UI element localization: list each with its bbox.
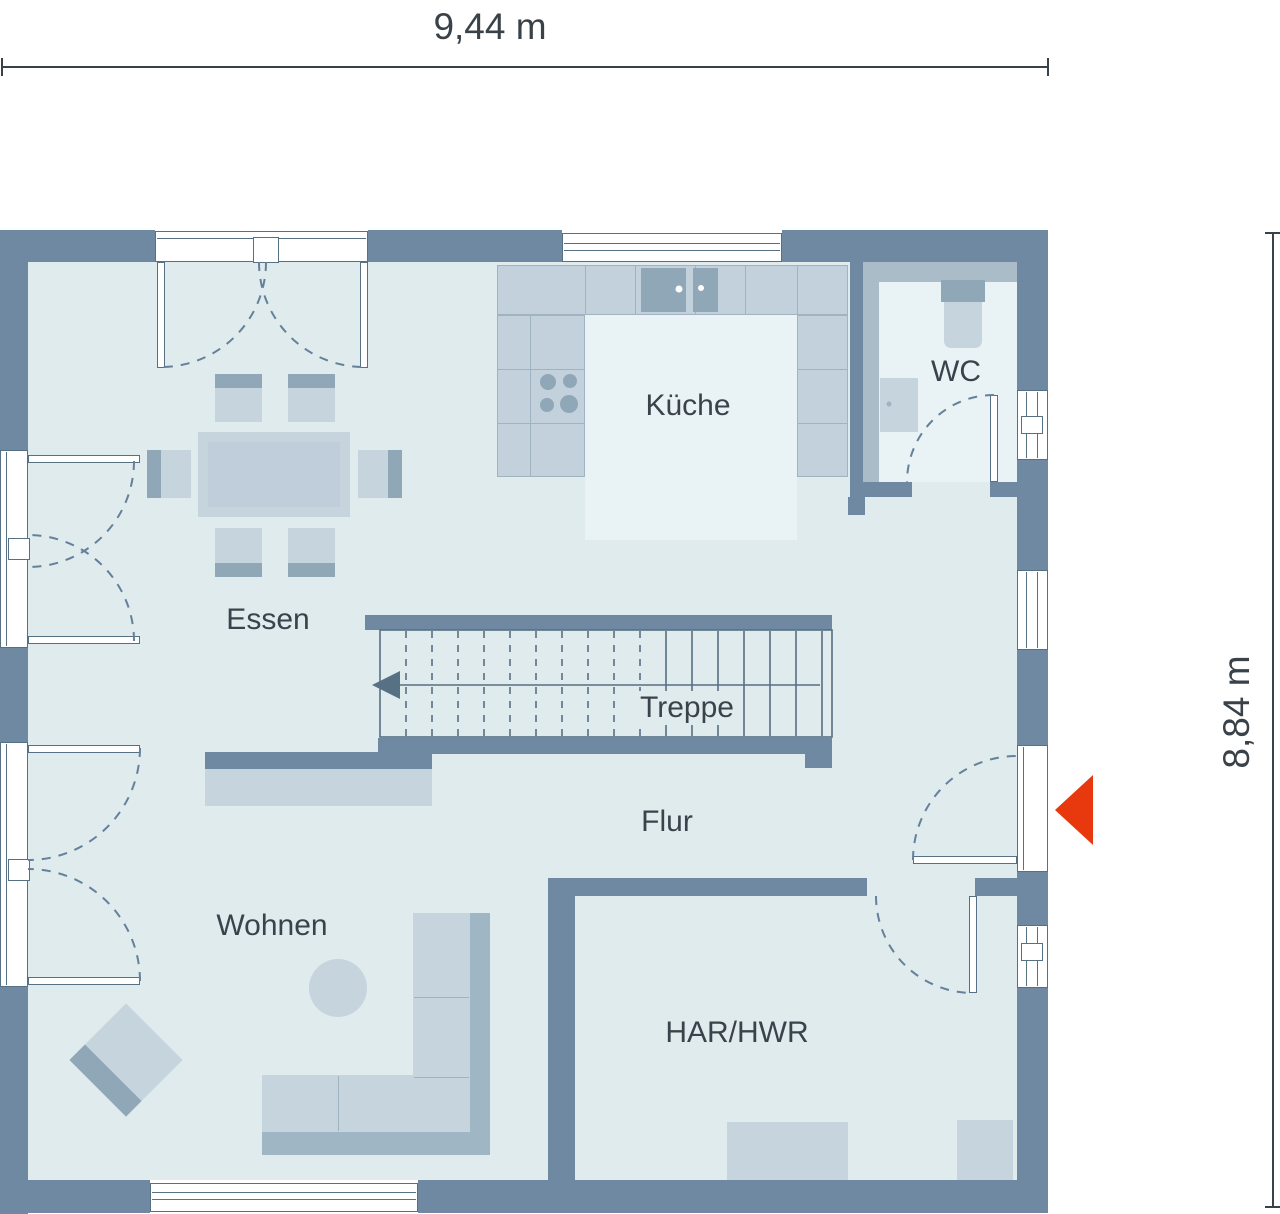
dimension-height-label: 8,84 m <box>1216 592 1256 832</box>
room-label-har-hwr: HAR/HWR <box>665 1016 808 1050</box>
door-swing-arcs <box>28 262 1017 993</box>
sink-drain-icon <box>698 285 704 291</box>
room-label-treppe: Treppe <box>632 691 742 725</box>
dimension-width-label: 9,44 m <box>370 6 610 48</box>
dimension-line-width <box>2 58 1048 76</box>
wc-sink-drain-icon <box>887 402 892 407</box>
stairs <box>380 630 832 737</box>
cooktop-icon <box>540 374 578 413</box>
room-label-kueche: Küche <box>645 389 730 423</box>
entrance-door-arc <box>913 756 1017 860</box>
sink-drain-icon <box>676 286 683 293</box>
french-door-top-arc-left <box>161 262 266 367</box>
plan-overlay <box>0 0 1280 1214</box>
floor-plan: 9,44 m 8,84 m Essen Küche WC Treppe Flur… <box>0 0 1280 1214</box>
wc-door-arc <box>907 395 994 482</box>
har-door-arc <box>876 896 973 993</box>
stairs-direction-arrowhead <box>372 671 400 699</box>
french-door-left2-arc-top <box>28 748 140 860</box>
room-label-wc: WC <box>931 355 981 389</box>
french-door-left2-arc-bottom <box>28 869 140 981</box>
room-label-wohnen: Wohnen <box>216 909 327 943</box>
room-label-essen: Essen <box>226 603 309 637</box>
dimension-line-height <box>1265 233 1280 1207</box>
french-door-top-arc-right <box>259 262 364 367</box>
french-door-left1-arc-bottom <box>28 535 134 641</box>
room-label-flur: Flur <box>641 805 693 839</box>
entrance-arrow-icon <box>1055 775 1093 845</box>
french-door-left1-arc-top <box>28 461 134 567</box>
